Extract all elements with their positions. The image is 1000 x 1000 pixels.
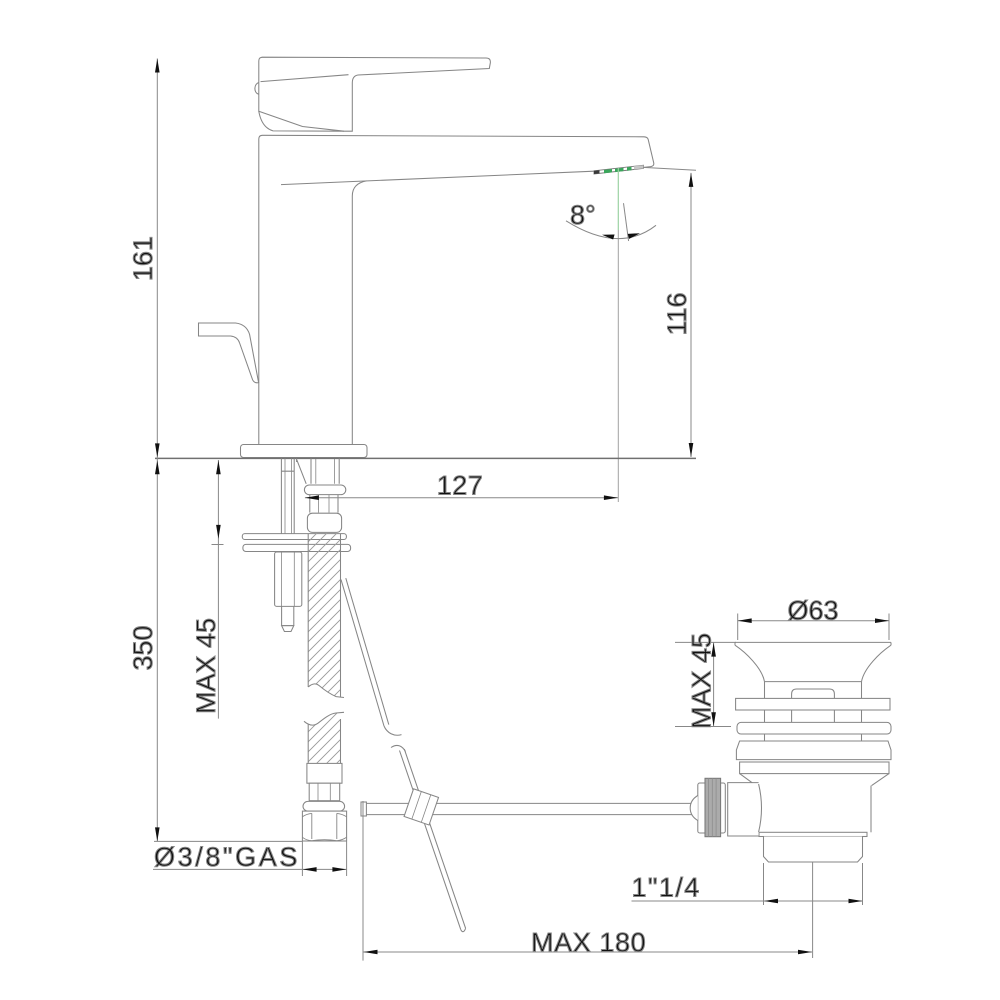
svg-text:8°: 8°	[570, 200, 596, 230]
svg-text:116: 116	[662, 292, 692, 335]
svg-text:127: 127	[437, 470, 484, 500]
svg-text:Ø63: Ø63	[787, 595, 838, 625]
svg-text:MAX 45: MAX 45	[687, 633, 717, 729]
svg-text:350: 350	[128, 625, 158, 670]
svg-text:1"1/4: 1"1/4	[632, 873, 701, 903]
svg-text:MAX 45: MAX 45	[191, 618, 221, 714]
svg-text:161: 161	[128, 236, 158, 281]
svg-text:Ø3/8"GAS: Ø3/8"GAS	[154, 842, 300, 872]
svg-text:MAX 180: MAX 180	[531, 927, 646, 957]
